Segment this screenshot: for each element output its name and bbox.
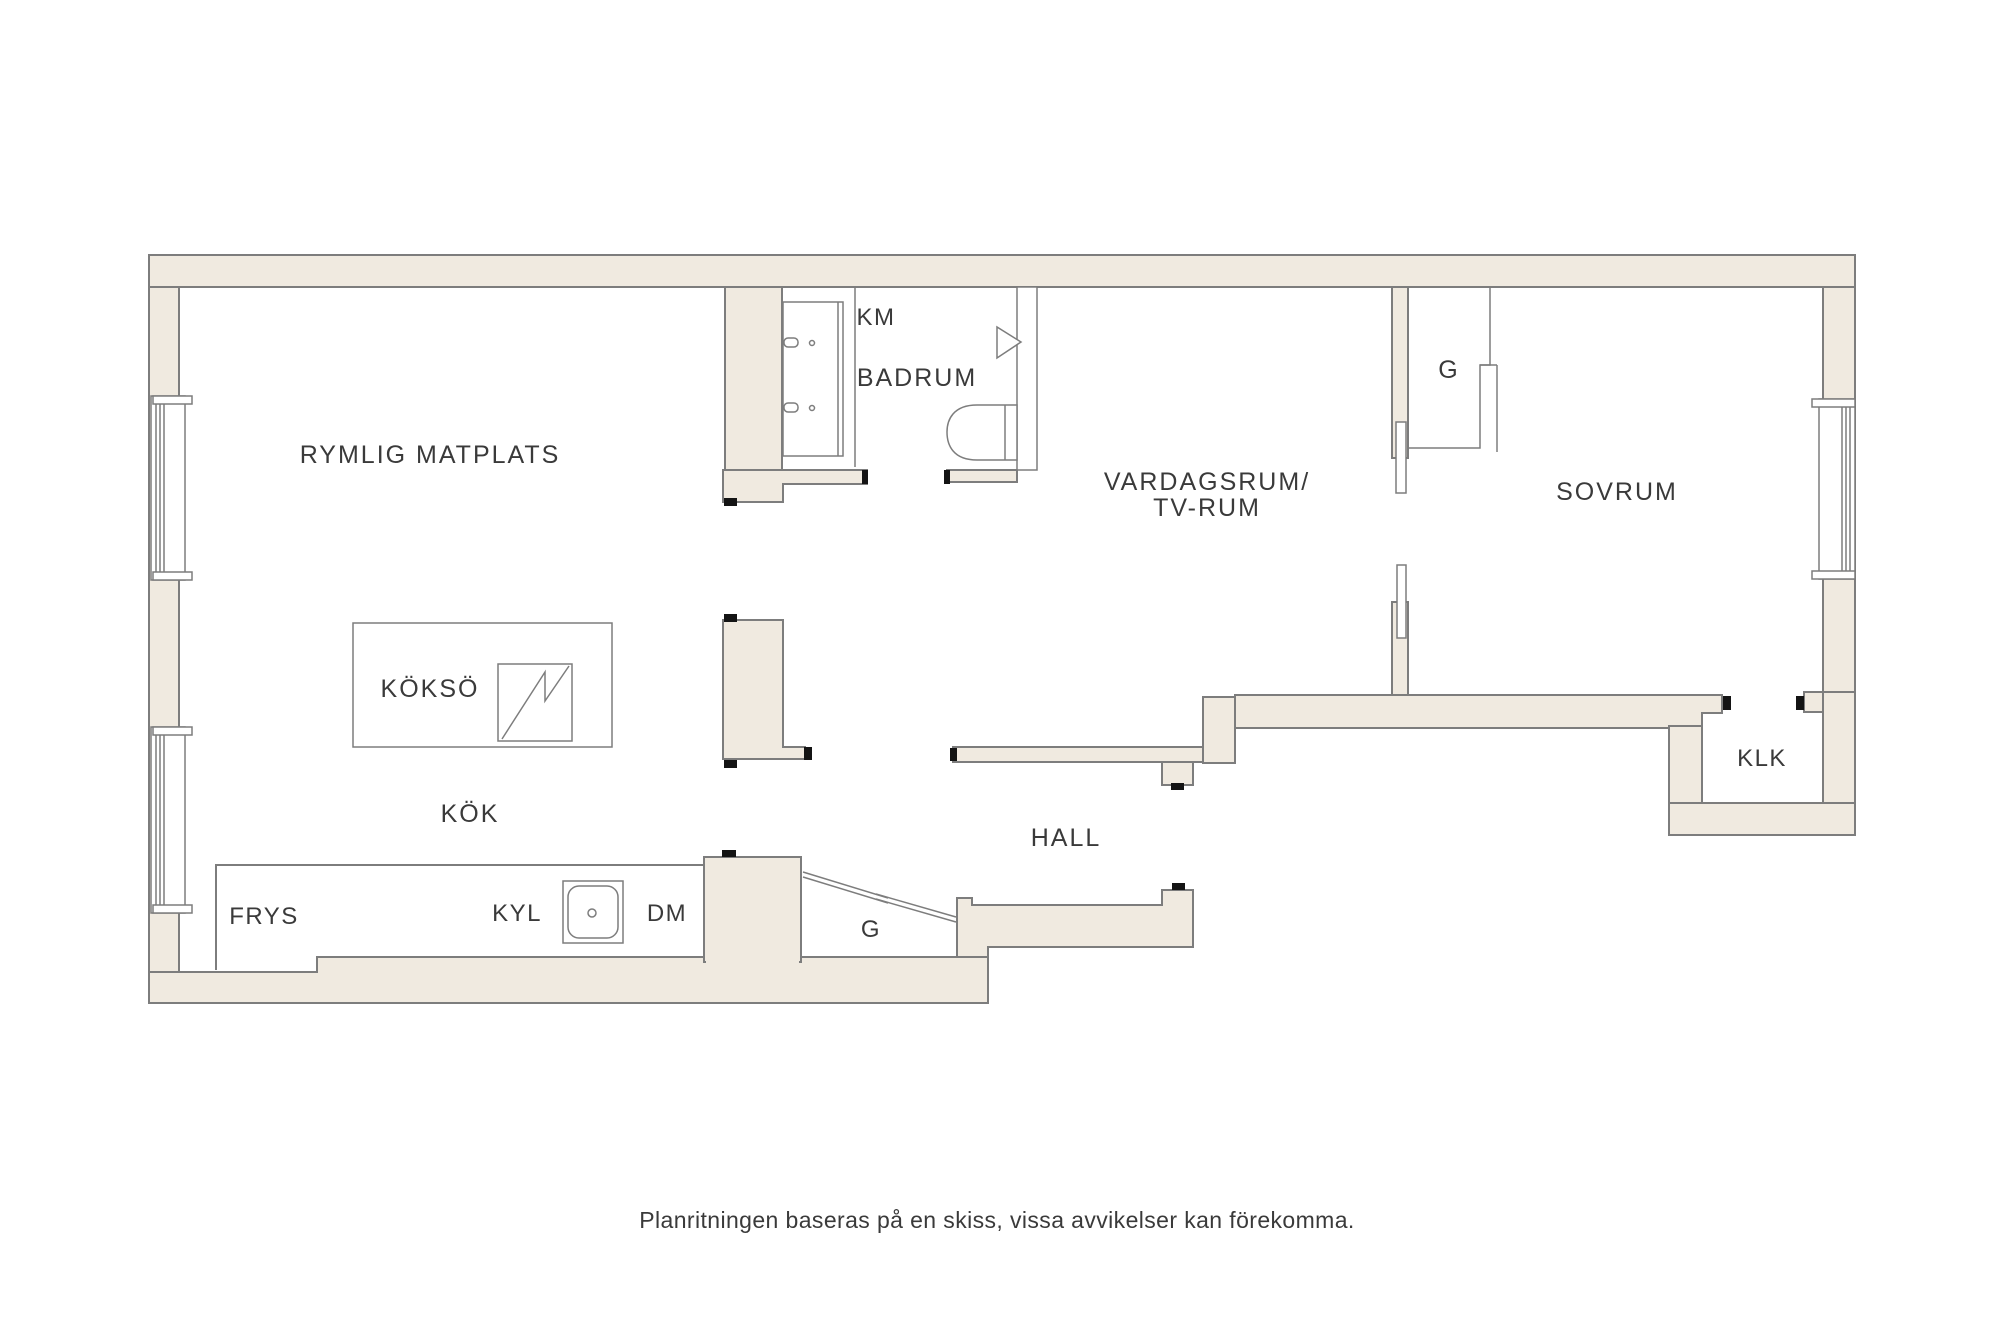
label-km: KM <box>857 304 896 331</box>
wall-badrum-bottom-right <box>947 470 1017 482</box>
floorplan-drawing: RYMLIG MATPLATS KM BADRUM VARDAGSRUM/ TV… <box>0 0 2000 1333</box>
label-kokso: KÖKSÖ <box>381 675 480 703</box>
vanity-unit <box>783 302 843 456</box>
door-jamb <box>804 747 812 760</box>
wall-badrum-bottom <box>723 470 867 502</box>
door-jamb <box>944 470 950 484</box>
wall-entry-stub <box>1162 762 1193 785</box>
door-jamb <box>1171 783 1184 790</box>
kitchen-sink <box>563 881 623 943</box>
label-vardagsrum-line1: VARDAGSRUM/ <box>1104 468 1310 496</box>
label-kyl: KYL <box>492 900 542 927</box>
wall-corridor <box>1235 695 1722 728</box>
window-left-2 <box>151 727 192 913</box>
door-leaf <box>1397 565 1406 638</box>
door-jamb <box>724 614 737 622</box>
sliding-door <box>803 872 957 957</box>
door-jamb <box>724 498 737 506</box>
label-kok: KÖK <box>441 800 500 828</box>
window-left-1 <box>151 396 192 580</box>
hob-icon <box>498 664 572 741</box>
wall-hall-band <box>957 890 1193 957</box>
label-matplats: RYMLIG MATPLATS <box>300 441 561 469</box>
wall-seam-patch <box>706 950 799 963</box>
label-sovrum: SOVRUM <box>1556 478 1678 506</box>
label-frys: FRYS <box>229 903 299 930</box>
toilet <box>947 405 1017 460</box>
floorplan-page: RYMLIG MATPLATS KM BADRUM VARDAGSRUM/ TV… <box>0 0 2000 1333</box>
door-jamb <box>1172 883 1185 890</box>
label-badrum: BADRUM <box>857 364 977 392</box>
window-right <box>1812 399 1855 579</box>
footer-disclaimer: Planritningen baseras på en skiss, vissa… <box>639 1207 1354 1233</box>
badrum-right-wall <box>1017 287 1037 470</box>
door-leaf <box>1396 422 1406 493</box>
label-klk: KLK <box>1737 745 1787 772</box>
wall-klk-bottom <box>1669 803 1855 835</box>
wall-badrum-left <box>725 287 782 470</box>
label-hall: HALL <box>1031 824 1102 852</box>
label-closet-entry: G <box>861 916 881 943</box>
wall-klk-door-stub <box>1804 692 1823 712</box>
label-vardagsrum-line2: TV-RUM <box>1153 494 1261 522</box>
door-jamb <box>1796 696 1804 710</box>
wall-entry-upper <box>953 747 1203 762</box>
wall-step-connector <box>1203 697 1235 763</box>
wall-bottom <box>149 957 988 1003</box>
label-closet-top: G <box>1438 356 1459 384</box>
wall-top <box>149 255 1855 287</box>
door-jamb <box>862 470 868 484</box>
door-jamb <box>1723 696 1731 710</box>
door-jamb <box>722 850 736 857</box>
door-jamb <box>724 760 737 768</box>
door-jamb <box>950 748 957 761</box>
wall-entry-pillar <box>704 857 801 962</box>
label-dm: DM <box>647 900 687 927</box>
wall-matplats-divider <box>723 620 805 759</box>
